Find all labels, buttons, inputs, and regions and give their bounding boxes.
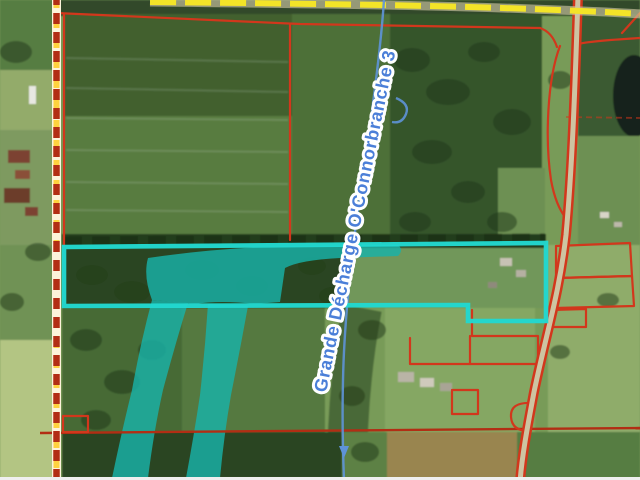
satellite-background (0, 0, 640, 480)
map-canvas[interactable]: Grande Décharge O'Connorbranche 3 (0, 0, 640, 480)
municipal-boundary-line (52, 0, 61, 480)
